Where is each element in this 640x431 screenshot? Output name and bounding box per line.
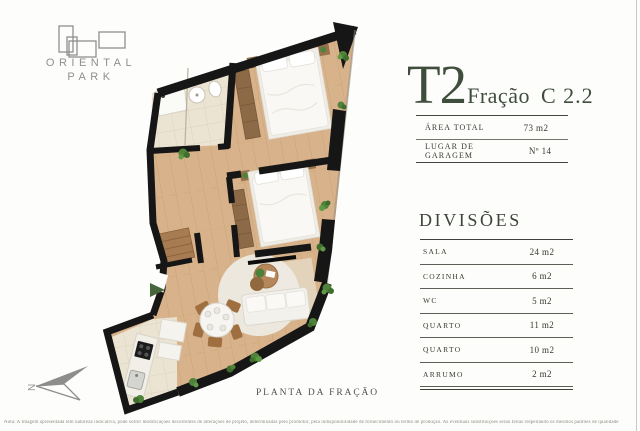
- unit-title: T2FraçãoC 2.2: [407, 57, 594, 112]
- division-value: 2 m2: [511, 369, 573, 379]
- footnote: Nota: A Imagem apresentada tem natureza …: [4, 420, 638, 425]
- summary-row-area: ÁREA TOTAL 73 m2: [416, 116, 568, 139]
- north-label: N: [27, 384, 38, 391]
- division-value: 24 m2: [511, 247, 573, 257]
- floor-plan: [100, 5, 410, 425]
- summary-table: ÁREA TOTAL 73 m2 LUGAR DE GARAGEM Nº 14: [416, 115, 568, 163]
- chair: [208, 336, 223, 347]
- division-label: SALA: [420, 247, 448, 256]
- plan-caption: PLANTA DA FRAÇÃO: [256, 388, 379, 398]
- plant: [256, 269, 265, 278]
- double-bed: [248, 162, 320, 247]
- division-value: 11 m2: [511, 320, 573, 330]
- division-value: 5 m2: [511, 296, 573, 306]
- garage-label: LUGAR DE GARAGEM: [416, 142, 512, 160]
- north-arrow-icon: [36, 366, 88, 386]
- division-row: WC 5 m2: [420, 288, 573, 313]
- divisions-table: SALA 24 m2 COZINHA 6 m2 WC 5 m2 QUARTO 1…: [420, 239, 573, 390]
- division-row: ARRUMO 2 m2: [420, 362, 573, 387]
- unit-fraction-code: C 2.2: [541, 83, 594, 108]
- garage-value: Nº 14: [512, 146, 568, 156]
- division-label: COZINHA: [420, 272, 466, 281]
- division-label: ARRUMO: [420, 370, 464, 379]
- unit-fraction-label: Fração: [467, 83, 530, 108]
- division-label: QUARTO: [420, 345, 461, 354]
- division-value: 6 m2: [511, 271, 573, 281]
- division-row: QUARTO 10 m2: [420, 337, 573, 362]
- division-label: WC: [420, 296, 438, 305]
- summary-row-garage: LUGAR DE GARAGEM Nº 14: [416, 139, 568, 162]
- divisions-heading: DIVISÕES: [419, 210, 522, 231]
- division-label: QUARTO: [420, 321, 461, 330]
- area-value: 73 m2: [504, 123, 568, 133]
- area-label: ÁREA TOTAL: [416, 123, 485, 132]
- north-arrow: N: [22, 356, 102, 412]
- division-row: QUARTO 11 m2: [420, 313, 573, 338]
- division-row: COZINHA 6 m2: [420, 264, 573, 289]
- page-right-border: [636, 0, 637, 431]
- division-row: SALA 24 m2: [420, 239, 573, 264]
- unit-typology: T2: [407, 54, 466, 115]
- division-value: 10 m2: [511, 345, 573, 355]
